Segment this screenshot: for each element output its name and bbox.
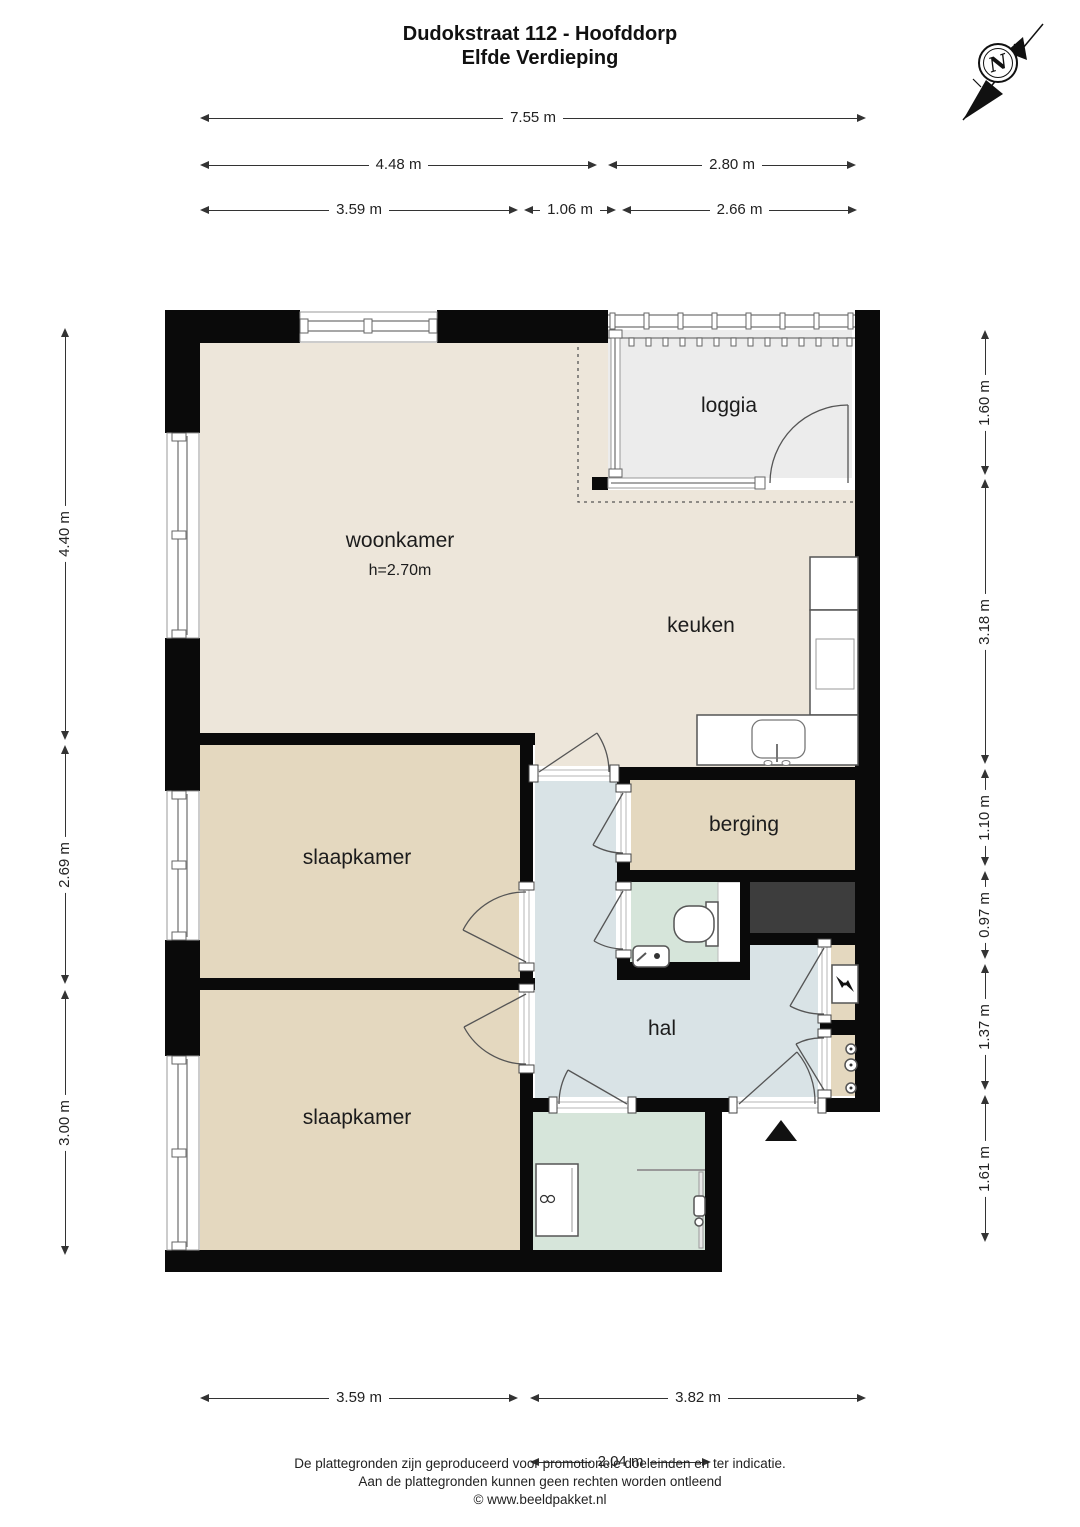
disclaimer-block: De plattegronden zijn geproduceerd voor … (0, 1455, 1080, 1509)
dimension-label: 1.61 m (977, 1141, 993, 1197)
dimension-label: 1.06 m (540, 202, 600, 218)
window-left-2 (167, 791, 199, 940)
room-label-hal: hal (648, 1017, 676, 1041)
dimension-right-6: 1.61 m (977, 1095, 993, 1242)
dimension-right-4: 0.97 m (977, 871, 993, 959)
dimension-label: 7.55 m (503, 110, 563, 126)
entrance-marker-icon (765, 1120, 797, 1141)
disclaimer-line-2: Aan de plattegronden kunnen geen rechten… (0, 1473, 1080, 1491)
mechanical-ventilation-icon (832, 965, 858, 1003)
room-label-slaapkamer-1: slaapkamer (303, 846, 412, 870)
dimension-top-right: 2.80 m (608, 157, 856, 173)
room-label-loggia: loggia (701, 394, 757, 418)
window-top (300, 312, 437, 342)
dimension-label: 3.59 m (329, 1390, 389, 1406)
dimension-right-2: 3.18 m (977, 479, 993, 764)
dimension-top-sub-2: 1.06 m (524, 202, 616, 218)
floorplan-page: Dudokstraat 112 - Hoofddorp Elfde Verdie… (0, 0, 1080, 1527)
dimension-right-5: 1.37 m (977, 964, 993, 1090)
meter-icons (845, 1044, 857, 1093)
dimension-top-sub-1: 3.59 m (200, 202, 518, 218)
washing-machine-icon (536, 1164, 578, 1236)
dimension-top-left: 4.48 m (200, 157, 597, 173)
toilet-icon (674, 902, 718, 946)
room-ceiling-height: h=2.70m (369, 562, 432, 580)
dimension-top-sub-3: 2.66 m (622, 202, 857, 218)
disclaimer-line-1: De plattegronden zijn geproduceerd voor … (0, 1455, 1080, 1473)
dimension-label: 2.80 m (702, 157, 762, 173)
room-label-keuken: keuken (667, 614, 735, 638)
compass-icon: N (963, 24, 1043, 120)
window-left-3 (167, 1056, 199, 1250)
dimension-label: 2.69 m (57, 837, 73, 893)
dimension-left-2: 2.69 m (57, 745, 73, 984)
dimension-label: 3.59 m (329, 202, 389, 218)
dimension-label: 3.00 m (57, 1095, 73, 1151)
dimension-label: 1.10 m (977, 790, 993, 846)
kitchen-cabinet-icon (810, 557, 858, 715)
dimension-label: 1.37 m (977, 999, 993, 1055)
dimension-left-1: 4.40 m (57, 328, 73, 740)
window-left-1 (167, 433, 199, 638)
dimension-label: 1.60 m (977, 375, 993, 431)
hand-basin-icon (633, 946, 669, 967)
dimension-label: 4.48 m (369, 157, 429, 173)
dimension-label: 2.66 m (710, 202, 770, 218)
floor-plan-drawing: N (0, 0, 1080, 1527)
dimension-top-total: 7.55 m (200, 110, 866, 126)
dimension-bottom-1: 3.59 m (200, 1390, 518, 1406)
room-label-woonkamer: woonkamer (346, 529, 455, 553)
dimension-label: 3.82 m (668, 1390, 728, 1406)
copyright-line: © www.beeldpakket.nl (0, 1491, 1080, 1509)
dimension-label: 3.18 m (977, 594, 993, 650)
dimension-label: 4.40 m (57, 506, 73, 562)
dimension-right-1: 1.60 m (977, 330, 993, 475)
dimension-right-3: 1.10 m (977, 769, 993, 866)
dimension-left-3: 3.00 m (57, 990, 73, 1255)
room-label-berging: berging (709, 813, 779, 837)
room-label-slaapkamer-2: slaapkamer (303, 1106, 412, 1130)
dimension-bottom-2: 3.82 m (530, 1390, 866, 1406)
kitchen-counter-sink-icon (697, 715, 858, 766)
dimension-label: 0.97 m (977, 887, 993, 943)
